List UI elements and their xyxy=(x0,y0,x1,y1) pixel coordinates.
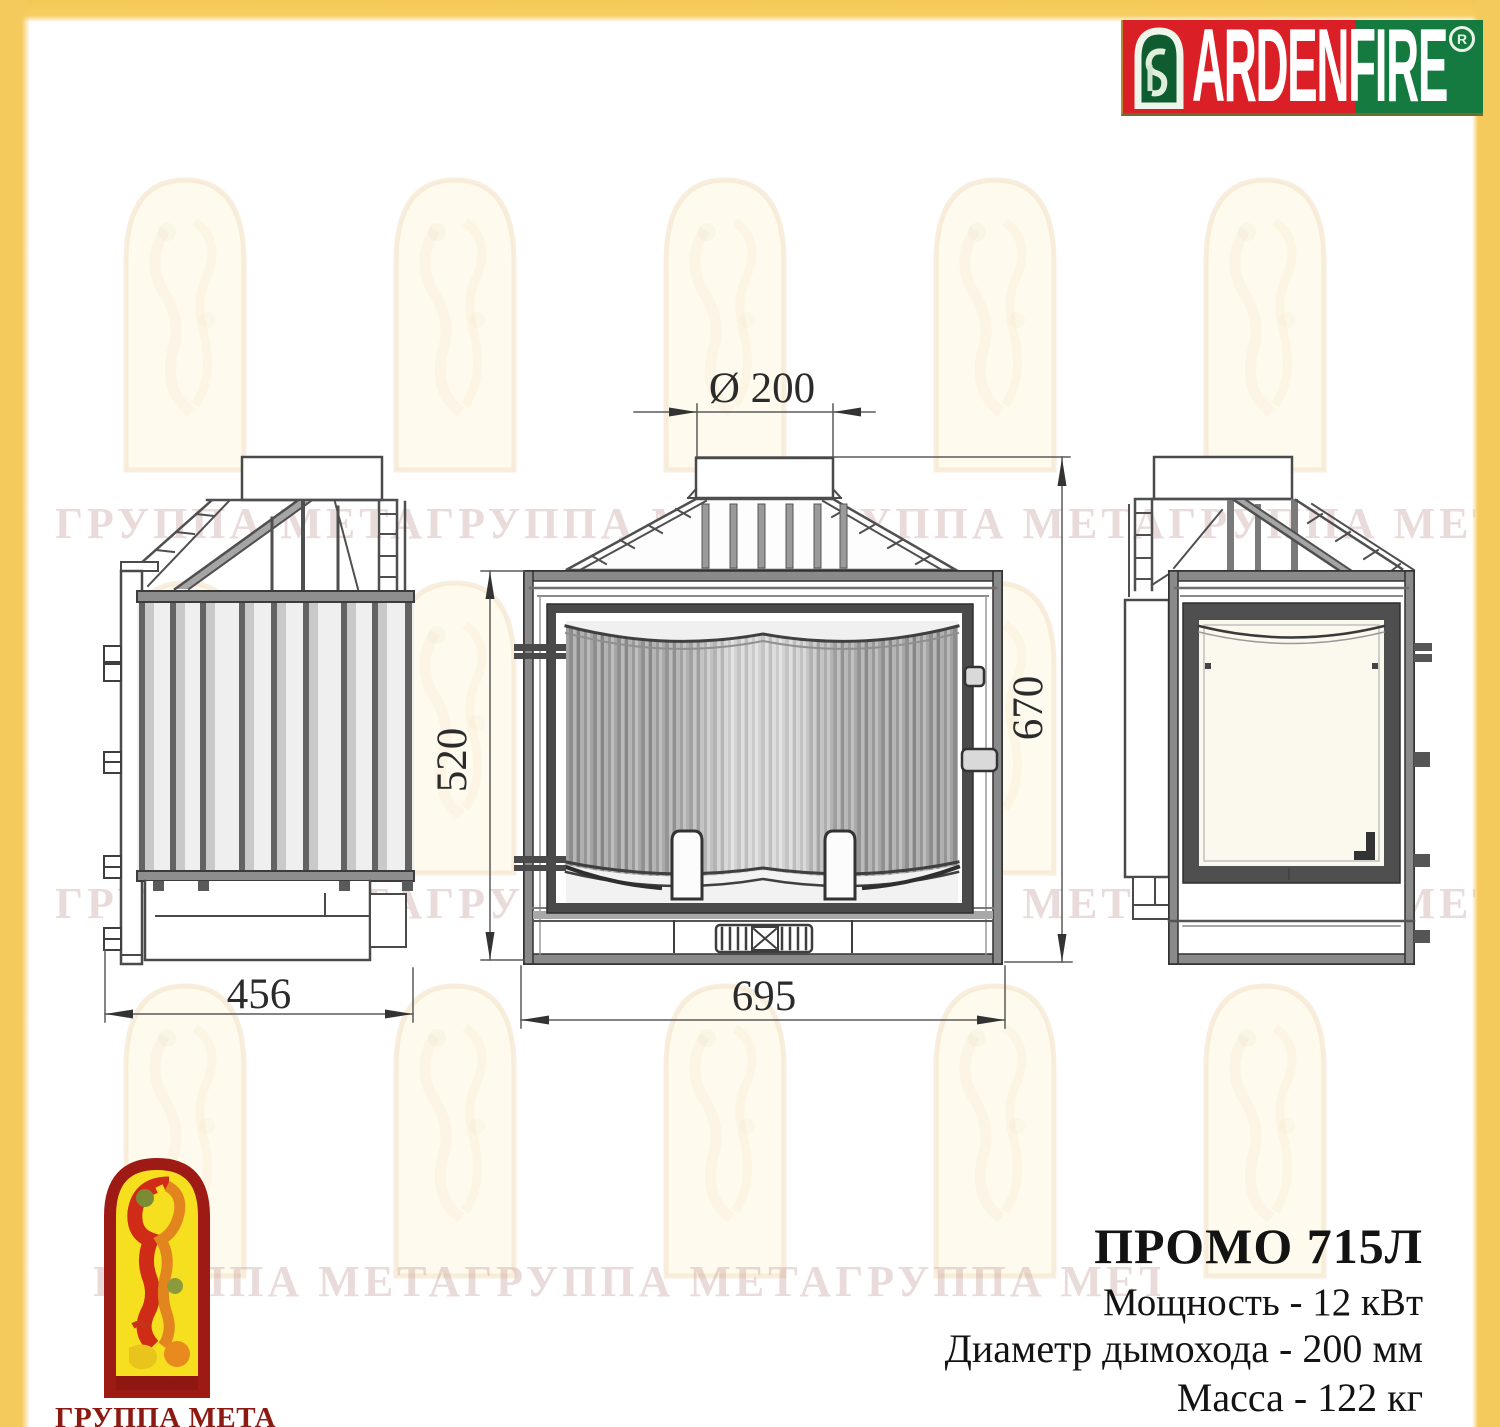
svg-text:670: 670 xyxy=(1005,676,1052,741)
svg-text:Ø 200: Ø 200 xyxy=(709,365,815,412)
svg-text:695: 695 xyxy=(732,973,797,1020)
svg-text:520: 520 xyxy=(429,728,476,793)
svg-text:456: 456 xyxy=(227,971,292,1018)
